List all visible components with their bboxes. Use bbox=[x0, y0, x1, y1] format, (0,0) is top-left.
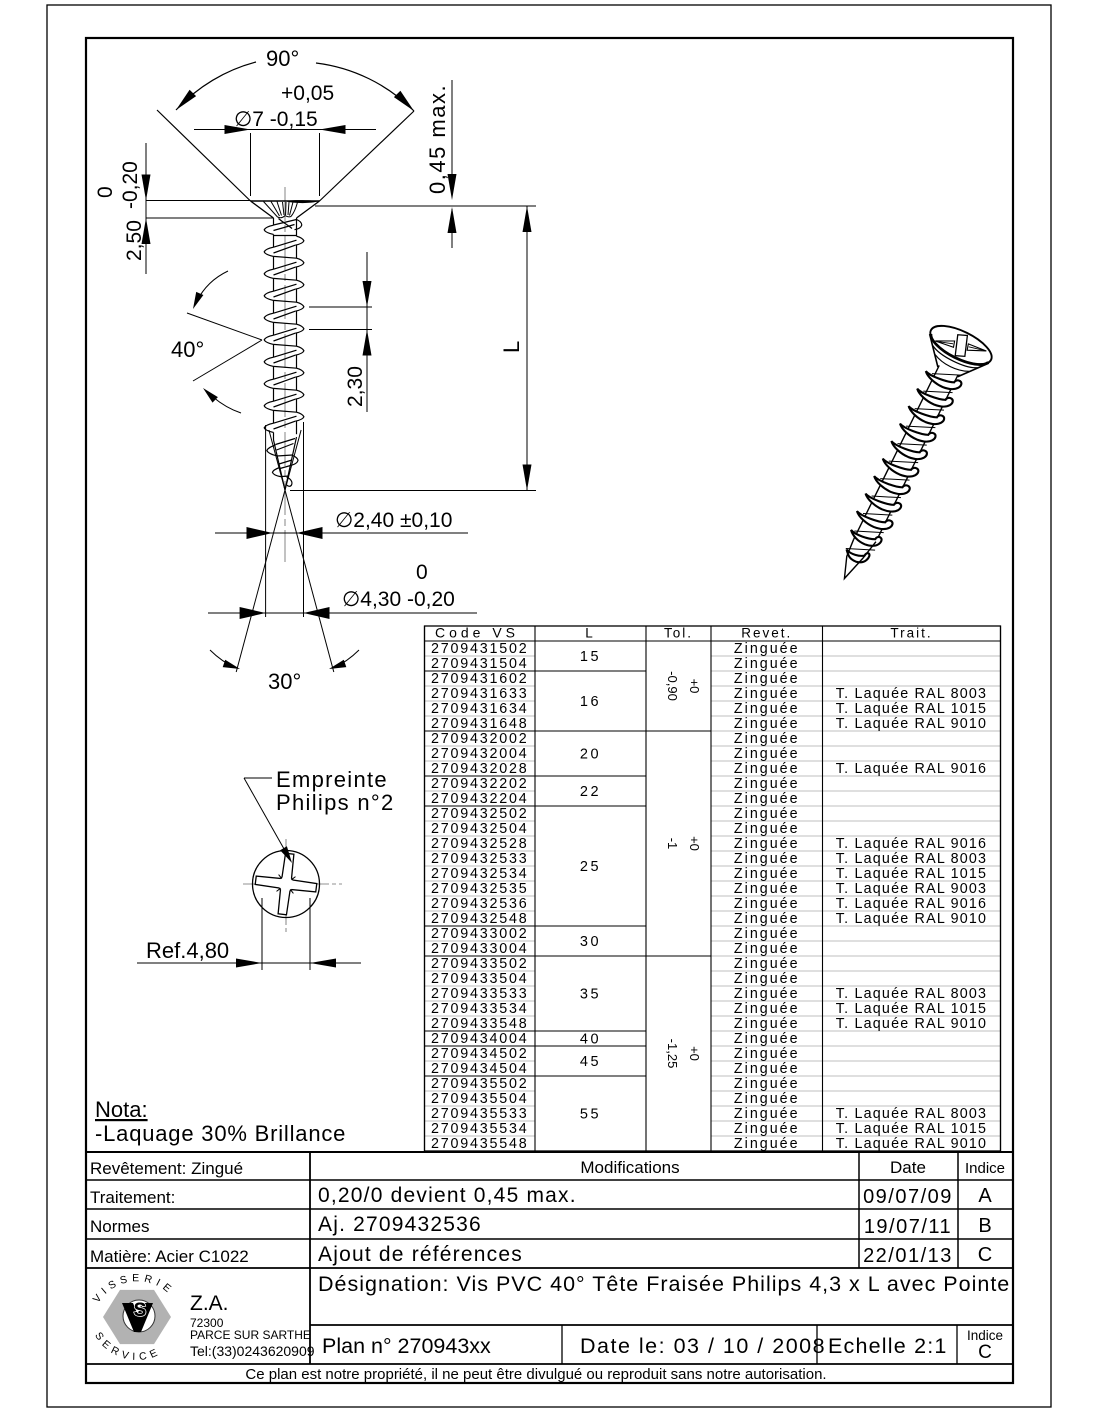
svg-text:T. Laquée RAL 9016: T. Laquée RAL 9016 bbox=[836, 761, 987, 777]
svg-text:2709434504: 2709434504 bbox=[431, 1061, 529, 1077]
svg-text:B: B bbox=[978, 1215, 991, 1237]
svg-text:Matière: Acier C1022: Matière: Acier C1022 bbox=[90, 1247, 249, 1266]
svg-text:2709432548: 2709432548 bbox=[431, 911, 529, 927]
svg-text:2,30: 2,30 bbox=[344, 366, 367, 407]
svg-text:Désignation: Vis PVC 40° Tête: Désignation: Vis PVC 40° Tête Fraisée Ph… bbox=[318, 1272, 1010, 1296]
svg-text:Zinguée: Zinguée bbox=[734, 656, 800, 672]
svg-text:Zinguée: Zinguée bbox=[734, 776, 800, 792]
svg-text:T. Laquée RAL 1015: T. Laquée RAL 1015 bbox=[836, 701, 987, 717]
svg-text:Code VS: Code VS bbox=[435, 625, 519, 641]
svg-text:2709435534: 2709435534 bbox=[431, 1121, 529, 1137]
svg-text:19/07/11: 19/07/11 bbox=[864, 1216, 952, 1238]
svg-text:Zinguée: Zinguée bbox=[734, 956, 800, 972]
svg-text:2709433504: 2709433504 bbox=[431, 971, 529, 987]
svg-text:T. Laquée RAL 8003: T. Laquée RAL 8003 bbox=[836, 686, 987, 702]
svg-text:Empreinte: Empreinte bbox=[276, 767, 388, 792]
svg-text:0: 0 bbox=[416, 561, 428, 584]
svg-text:2709432028: 2709432028 bbox=[431, 761, 529, 777]
svg-text:Ajout de références: Ajout de références bbox=[318, 1243, 523, 1266]
svg-text:2709432535: 2709432535 bbox=[431, 881, 529, 897]
svg-text:Zinguée: Zinguée bbox=[734, 926, 800, 942]
svg-text:2709432528: 2709432528 bbox=[431, 836, 529, 852]
svg-text:22: 22 bbox=[580, 784, 601, 800]
svg-text:40: 40 bbox=[580, 1032, 601, 1048]
svg-text:+0: +0 bbox=[687, 836, 702, 851]
svg-text:30: 30 bbox=[580, 934, 601, 950]
svg-text:Zinguée: Zinguée bbox=[734, 686, 800, 702]
svg-text:2709431504: 2709431504 bbox=[431, 656, 529, 672]
svg-text:Zinguée: Zinguée bbox=[734, 731, 800, 747]
svg-text:Zinguée: Zinguée bbox=[734, 851, 800, 867]
svg-text:L: L bbox=[499, 341, 524, 353]
svg-text:Zinguée: Zinguée bbox=[734, 836, 800, 852]
svg-text:Date: Date bbox=[890, 1158, 926, 1177]
svg-text:Normes: Normes bbox=[90, 1217, 150, 1236]
svg-text:S: S bbox=[134, 1300, 147, 1321]
svg-text:2709432004: 2709432004 bbox=[431, 746, 529, 762]
svg-text:22/01/13: 22/01/13 bbox=[863, 1245, 953, 1267]
svg-text:2709431633: 2709431633 bbox=[431, 686, 529, 702]
svg-text:Indice: Indice bbox=[967, 1328, 1003, 1343]
svg-text:Modifications: Modifications bbox=[580, 1158, 679, 1177]
svg-text:Zinguée: Zinguée bbox=[734, 941, 800, 957]
svg-text:Nota:: Nota: bbox=[95, 1097, 148, 1122]
svg-text:Traitement:: Traitement: bbox=[90, 1188, 175, 1207]
svg-text:Revêtement: Zingué: Revêtement: Zingué bbox=[90, 1159, 243, 1178]
svg-text:C: C bbox=[978, 1342, 992, 1363]
svg-text:09/07/09: 09/07/09 bbox=[863, 1186, 953, 1208]
svg-text:90°: 90° bbox=[266, 46, 299, 71]
svg-text:2709432534: 2709432534 bbox=[431, 866, 529, 882]
svg-text:2709433534: 2709433534 bbox=[431, 1001, 529, 1017]
svg-text:T. Laquée RAL 8003: T. Laquée RAL 8003 bbox=[836, 986, 987, 1002]
svg-text:T. Laquée RAL 1015: T. Laquée RAL 1015 bbox=[836, 1001, 987, 1017]
svg-text:Zinguée: Zinguée bbox=[734, 971, 800, 987]
svg-text:2709433002: 2709433002 bbox=[431, 926, 529, 942]
svg-text:Ref.4,80: Ref.4,80 bbox=[146, 938, 229, 963]
svg-text:+0: +0 bbox=[687, 679, 702, 694]
svg-text:C: C bbox=[978, 1244, 992, 1266]
svg-text:0: 0 bbox=[94, 186, 117, 198]
svg-text:-1: -1 bbox=[665, 838, 680, 850]
svg-text:T. Laquée RAL 9016: T. Laquée RAL 9016 bbox=[836, 836, 987, 852]
svg-text:Zinguée: Zinguée bbox=[734, 1046, 800, 1062]
svg-text:2709432002: 2709432002 bbox=[431, 731, 529, 747]
svg-text:Zinguée: Zinguée bbox=[734, 791, 800, 807]
svg-text:Zinguée: Zinguée bbox=[734, 671, 800, 687]
svg-text:T. Laquée RAL 1015: T. Laquée RAL 1015 bbox=[836, 866, 987, 882]
svg-text:Zinguée: Zinguée bbox=[734, 716, 800, 732]
svg-text:Trait.: Trait. bbox=[890, 626, 932, 641]
svg-text:Zinguée: Zinguée bbox=[734, 1061, 800, 1077]
svg-text:T. Laquée RAL 9010: T. Laquée RAL 9010 bbox=[836, 1016, 987, 1032]
svg-text:35: 35 bbox=[580, 987, 601, 1003]
svg-text:45: 45 bbox=[580, 1054, 601, 1070]
svg-text:T. Laquée RAL 1015: T. Laquée RAL 1015 bbox=[836, 1121, 987, 1137]
svg-text:2709433548: 2709433548 bbox=[431, 1016, 529, 1032]
svg-text:2709435548: 2709435548 bbox=[431, 1136, 529, 1152]
svg-text:L: L bbox=[585, 626, 596, 641]
svg-text:Zinguée: Zinguée bbox=[734, 1031, 800, 1047]
svg-text:+0,05: +0,05 bbox=[281, 82, 334, 105]
svg-text:Zinguée: Zinguée bbox=[734, 761, 800, 777]
svg-text:2709434004: 2709434004 bbox=[431, 1031, 529, 1047]
svg-text:2709433502: 2709433502 bbox=[431, 956, 529, 972]
svg-text:Philips n°2: Philips n°2 bbox=[276, 790, 395, 815]
svg-text:T. Laquée RAL 9010: T. Laquée RAL 9010 bbox=[836, 1136, 987, 1152]
svg-text:+0: +0 bbox=[687, 1046, 702, 1061]
svg-text:2709433004: 2709433004 bbox=[431, 941, 529, 957]
svg-text:Plan n° 270943xx: Plan n° 270943xx bbox=[322, 1334, 491, 1358]
svg-text:2709431634: 2709431634 bbox=[431, 701, 529, 717]
svg-text:2709432204: 2709432204 bbox=[431, 791, 529, 807]
svg-text:Z.A.: Z.A. bbox=[190, 1292, 229, 1315]
svg-text:2709435502: 2709435502 bbox=[431, 1076, 529, 1092]
svg-text:T. Laquée RAL 9016: T. Laquée RAL 9016 bbox=[836, 896, 987, 912]
svg-text:Zinguée: Zinguée bbox=[734, 701, 800, 717]
svg-text:2709432202: 2709432202 bbox=[431, 776, 529, 792]
svg-text:Zinguée: Zinguée bbox=[734, 866, 800, 882]
svg-text:Zinguée: Zinguée bbox=[734, 1121, 800, 1137]
svg-text:-1,25: -1,25 bbox=[665, 1039, 680, 1069]
svg-text:Zinguée: Zinguée bbox=[734, 896, 800, 912]
svg-text:2709435504: 2709435504 bbox=[431, 1091, 529, 1107]
svg-text:Zinguée: Zinguée bbox=[734, 1001, 800, 1017]
svg-text:PARCE SUR SARTHE: PARCE SUR SARTHE bbox=[190, 1328, 311, 1342]
svg-text:16: 16 bbox=[580, 694, 601, 710]
svg-text:Date le: 03 / 10 / 2008: Date le: 03 / 10 / 2008 bbox=[580, 1334, 826, 1358]
svg-text:55: 55 bbox=[580, 1107, 601, 1123]
svg-text:Zinguée: Zinguée bbox=[734, 1106, 800, 1122]
svg-text:Ce plan est notre propriété, i: Ce plan est notre propriété, il ne peut … bbox=[245, 1366, 826, 1383]
svg-text:2709432536: 2709432536 bbox=[431, 896, 529, 912]
svg-text:30°: 30° bbox=[268, 669, 301, 694]
svg-text:2709432533: 2709432533 bbox=[431, 851, 529, 867]
svg-text:20: 20 bbox=[580, 747, 601, 763]
svg-text:Tel:(33)0243620909: Tel:(33)0243620909 bbox=[190, 1343, 315, 1359]
svg-text:2709432504: 2709432504 bbox=[431, 821, 529, 837]
svg-text:2709431648: 2709431648 bbox=[431, 716, 529, 732]
svg-text:Zinguée: Zinguée bbox=[734, 911, 800, 927]
svg-text:T. Laquée RAL 8003: T. Laquée RAL 8003 bbox=[836, 1106, 987, 1122]
svg-text:0,20/0 devient 0,45 max.: 0,20/0 devient 0,45 max. bbox=[318, 1184, 577, 1207]
svg-text:40°: 40° bbox=[171, 337, 204, 362]
svg-text:A: A bbox=[978, 1185, 992, 1207]
svg-text:Zinguée: Zinguée bbox=[734, 881, 800, 897]
svg-text:T. Laquée RAL 9010: T. Laquée RAL 9010 bbox=[836, 911, 987, 927]
svg-text:Zinguée: Zinguée bbox=[734, 746, 800, 762]
svg-text:2709434502: 2709434502 bbox=[431, 1046, 529, 1062]
svg-text:2709432502: 2709432502 bbox=[431, 806, 529, 822]
svg-text:∅4,30 -0,20: ∅4,30 -0,20 bbox=[342, 588, 455, 611]
svg-text:Zinguée: Zinguée bbox=[734, 1016, 800, 1032]
svg-text:Zinguée: Zinguée bbox=[734, 806, 800, 822]
svg-text:Revet.: Revet. bbox=[741, 626, 792, 641]
svg-text:0,45 max.: 0,45 max. bbox=[425, 84, 450, 194]
svg-text:-0,20: -0,20 bbox=[119, 161, 142, 209]
svg-text:Zinguée: Zinguée bbox=[734, 1136, 800, 1152]
svg-text:Zinguée: Zinguée bbox=[734, 1091, 800, 1107]
svg-text:Zinguée: Zinguée bbox=[734, 641, 800, 657]
svg-text:T. Laquée RAL 8003: T. Laquée RAL 8003 bbox=[836, 851, 987, 867]
svg-text:Zinguée: Zinguée bbox=[734, 1076, 800, 1092]
svg-text:-0,90: -0,90 bbox=[665, 671, 680, 701]
svg-text:Indice: Indice bbox=[965, 1160, 1005, 1177]
svg-text:Aj. 2709432536: Aj. 2709432536 bbox=[318, 1213, 482, 1236]
svg-text:Zinguée: Zinguée bbox=[734, 986, 800, 1002]
svg-text:2709433533: 2709433533 bbox=[431, 986, 529, 1002]
svg-text:-Laquage 30% Brillance: -Laquage 30% Brillance bbox=[95, 1121, 346, 1146]
svg-text:T. Laquée RAL 9010: T. Laquée RAL 9010 bbox=[836, 716, 987, 732]
svg-text:25: 25 bbox=[580, 859, 601, 875]
svg-text:∅7 -0,15: ∅7 -0,15 bbox=[234, 108, 318, 131]
svg-text:Zinguée: Zinguée bbox=[734, 821, 800, 837]
svg-text:Tol.: Tol. bbox=[664, 626, 693, 641]
svg-text:∅2,40 ±0,10: ∅2,40 ±0,10 bbox=[335, 509, 452, 532]
svg-text:Echelle 2:1: Echelle 2:1 bbox=[828, 1334, 948, 1358]
svg-text:2709431602: 2709431602 bbox=[431, 671, 529, 687]
svg-text:2,50: 2,50 bbox=[123, 220, 146, 261]
svg-text:15: 15 bbox=[580, 649, 601, 665]
svg-text:2709431502: 2709431502 bbox=[431, 641, 529, 657]
svg-text:2709435533: 2709435533 bbox=[431, 1106, 529, 1122]
svg-text:T. Laquée RAL 9003: T. Laquée RAL 9003 bbox=[836, 881, 987, 897]
